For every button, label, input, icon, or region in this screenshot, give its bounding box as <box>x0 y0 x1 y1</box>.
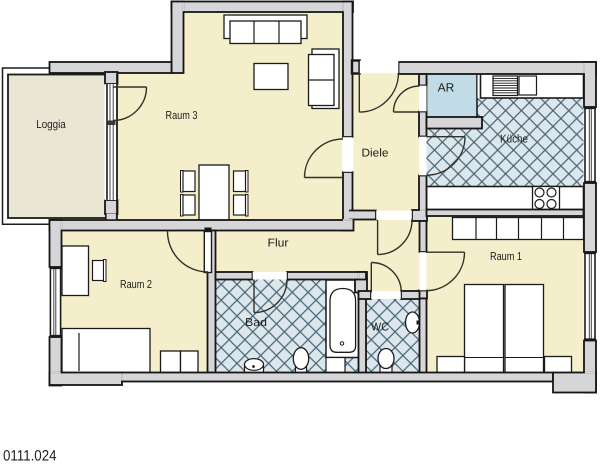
svg-text:AR: AR <box>438 81 455 95</box>
svg-text:Flur: Flur <box>268 238 289 250</box>
svg-text:Raum 3: Raum 3 <box>166 110 198 122</box>
svg-text:WC: WC <box>371 322 389 334</box>
svg-text:Bad: Bad <box>245 317 267 329</box>
svg-text:Loggia: Loggia <box>36 119 66 131</box>
svg-text:Raum 1: Raum 1 <box>490 251 522 263</box>
svg-text:Diele: Diele <box>362 148 389 160</box>
svg-text:Küche: Küche <box>500 134 528 146</box>
svg-text:0111.024: 0111.024 <box>3 448 57 465</box>
svg-text:Raum 2: Raum 2 <box>120 279 152 291</box>
